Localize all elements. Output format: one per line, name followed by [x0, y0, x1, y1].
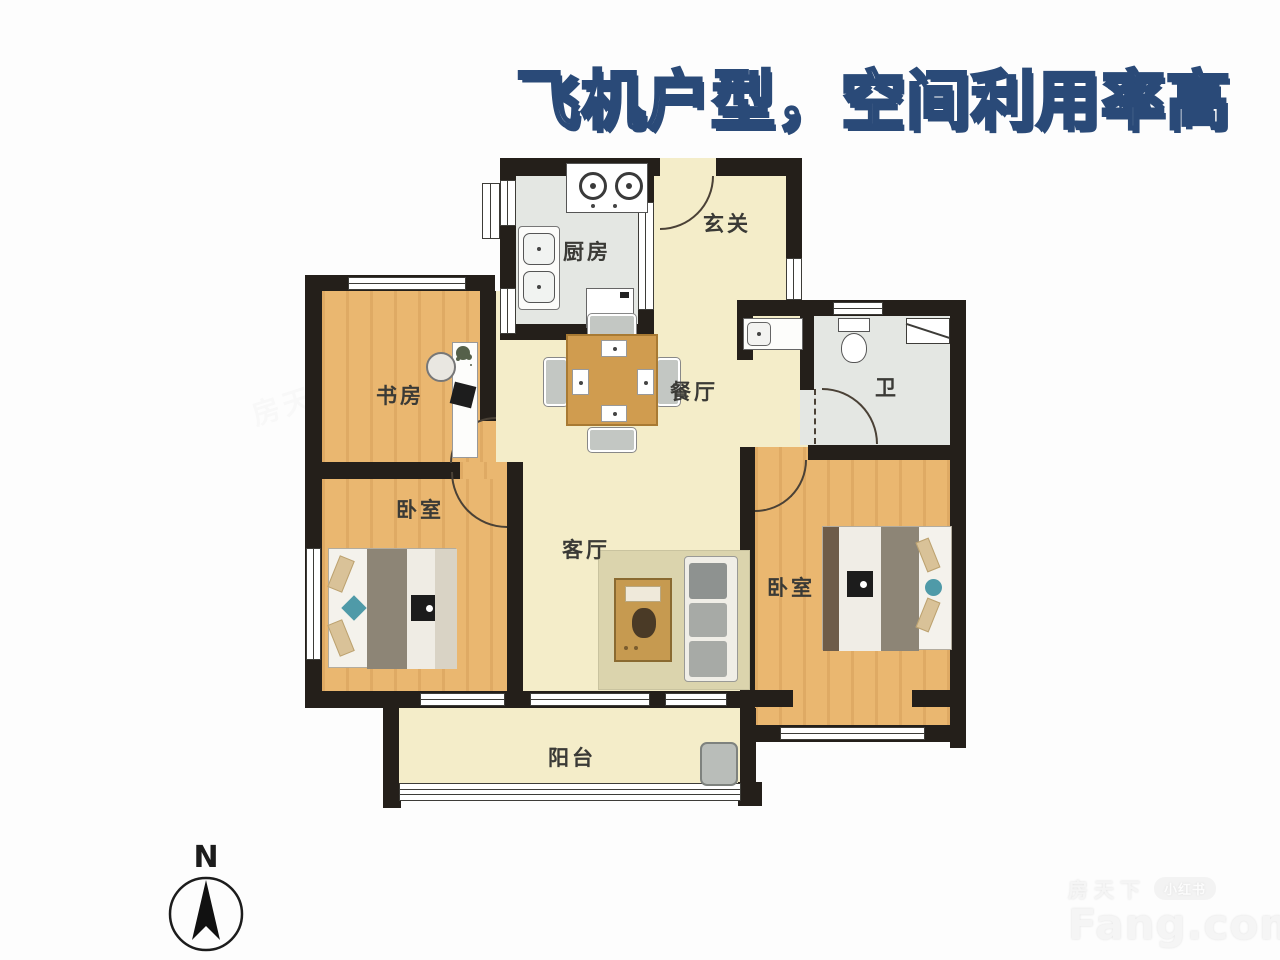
wall-segment: [507, 462, 523, 708]
floorplan-page: 房天下 房天下 房天下 房天下 飞机户型，空间利用率高: [0, 0, 1280, 960]
window: [306, 548, 321, 660]
accent-pillow: [341, 595, 366, 620]
room-label-living: 客厅: [562, 534, 610, 564]
desk-chair: [426, 352, 456, 382]
knob-icon: [613, 204, 617, 208]
room-label-dining: 餐厅: [670, 376, 718, 406]
wall-segment: [740, 708, 756, 792]
balcony-window-band: [399, 783, 741, 801]
room-label-entry: 玄关: [703, 208, 751, 238]
sofa-cushion: [689, 563, 727, 599]
wall-segment: [480, 291, 496, 421]
dining-table: [566, 334, 658, 426]
room-label-bath: 卫: [875, 372, 899, 402]
room-label-study: 书房: [376, 380, 424, 410]
ac-unit: [482, 183, 500, 239]
pillow: [327, 555, 355, 593]
bed-foot: [823, 527, 839, 651]
window: [665, 693, 727, 706]
place-setting: [572, 369, 589, 395]
watermark-brand-cn: 房天下: [1068, 874, 1146, 903]
window: [780, 727, 925, 740]
sofa-cushion: [689, 603, 727, 637]
bed: [822, 526, 952, 650]
place-setting: [637, 369, 654, 395]
room-label-kitchen: 厨房: [563, 236, 611, 266]
dining-chair: [544, 358, 568, 406]
room-label-balcony: 阳台: [548, 742, 596, 772]
window: [786, 258, 802, 300]
vanity-counter: [743, 318, 803, 350]
bed-side: [435, 549, 457, 669]
watermark-badge: 小红书: [1154, 877, 1216, 900]
sofa: [684, 556, 738, 682]
wall-segment: [808, 445, 952, 460]
place-setting: [601, 340, 627, 357]
bedroomR-doorway: [755, 447, 808, 461]
bed-accent: [847, 571, 873, 597]
bath-doorway: [800, 390, 814, 445]
entry-doorway: [660, 158, 716, 178]
kitchen-sink: [518, 226, 560, 310]
window: [833, 302, 883, 315]
tray: [625, 586, 661, 602]
vase: [632, 608, 656, 638]
sink-basin: [523, 271, 555, 303]
wall-segment: [950, 300, 966, 748]
wall-segment: [755, 690, 793, 707]
place-setting: [601, 405, 627, 422]
washing-machine: [700, 742, 738, 786]
accent-pillow: [925, 579, 942, 596]
room-label-bedroom-left: 卧室: [396, 494, 444, 524]
dining-chair: [588, 428, 636, 452]
sink-basin: [523, 233, 555, 265]
shower: [906, 318, 950, 344]
door-leaf: [814, 389, 816, 444]
page-title: 飞机户型，空间利用率高: [516, 50, 1216, 142]
knob-icon: [591, 204, 595, 208]
pillow: [327, 619, 355, 657]
burner-icon: [579, 172, 607, 200]
vanity-sink: [747, 322, 771, 346]
blanket: [367, 549, 407, 669]
site-watermark: 房天下 小红书 Fang.com: [1068, 874, 1278, 947]
window: [500, 180, 516, 226]
pillow: [916, 538, 941, 573]
window: [530, 693, 650, 706]
coffee-table: [614, 578, 672, 662]
pillow: [916, 598, 941, 633]
window: [420, 693, 505, 706]
watermark-brand-en: Fang.com: [1068, 903, 1278, 947]
burner-icon: [615, 172, 643, 200]
room-label-bedroom-right: 卧室: [767, 572, 815, 602]
bed: [328, 548, 456, 668]
toilet-bowl: [841, 333, 867, 363]
kitchen-sliding-door: [638, 202, 654, 310]
bed-accent: [411, 595, 437, 621]
compass: N: [160, 840, 252, 952]
window: [348, 277, 466, 290]
window: [500, 288, 516, 334]
sofa-cushion: [689, 641, 727, 677]
plant-icon: [456, 346, 470, 360]
compass-north-label: N: [193, 840, 218, 875]
wall-segment: [912, 690, 966, 707]
stove: [566, 163, 648, 213]
wall-segment: [305, 462, 460, 479]
blanket: [881, 527, 919, 651]
fridge-detail: [620, 292, 629, 298]
wall-segment: [786, 158, 802, 260]
toilet-tank: [838, 318, 870, 332]
compass-icon: [166, 874, 246, 954]
